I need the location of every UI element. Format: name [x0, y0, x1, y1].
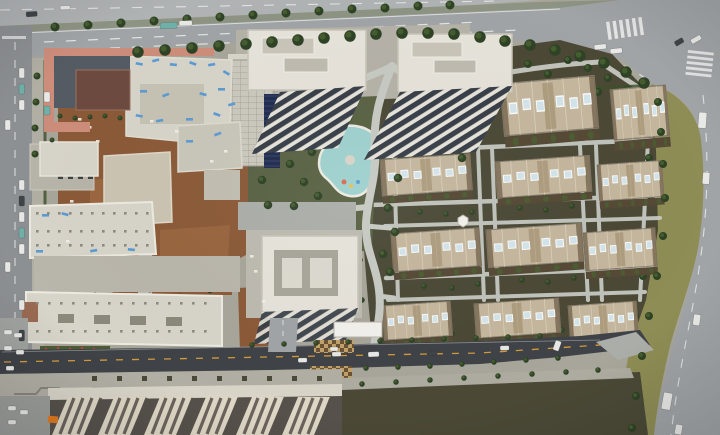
- aerial-photo-stage: Aerial drone photograph: residential dev…: [0, 0, 720, 435]
- aerial-photo: [0, 0, 720, 435]
- vignette-overlay: [0, 0, 720, 435]
